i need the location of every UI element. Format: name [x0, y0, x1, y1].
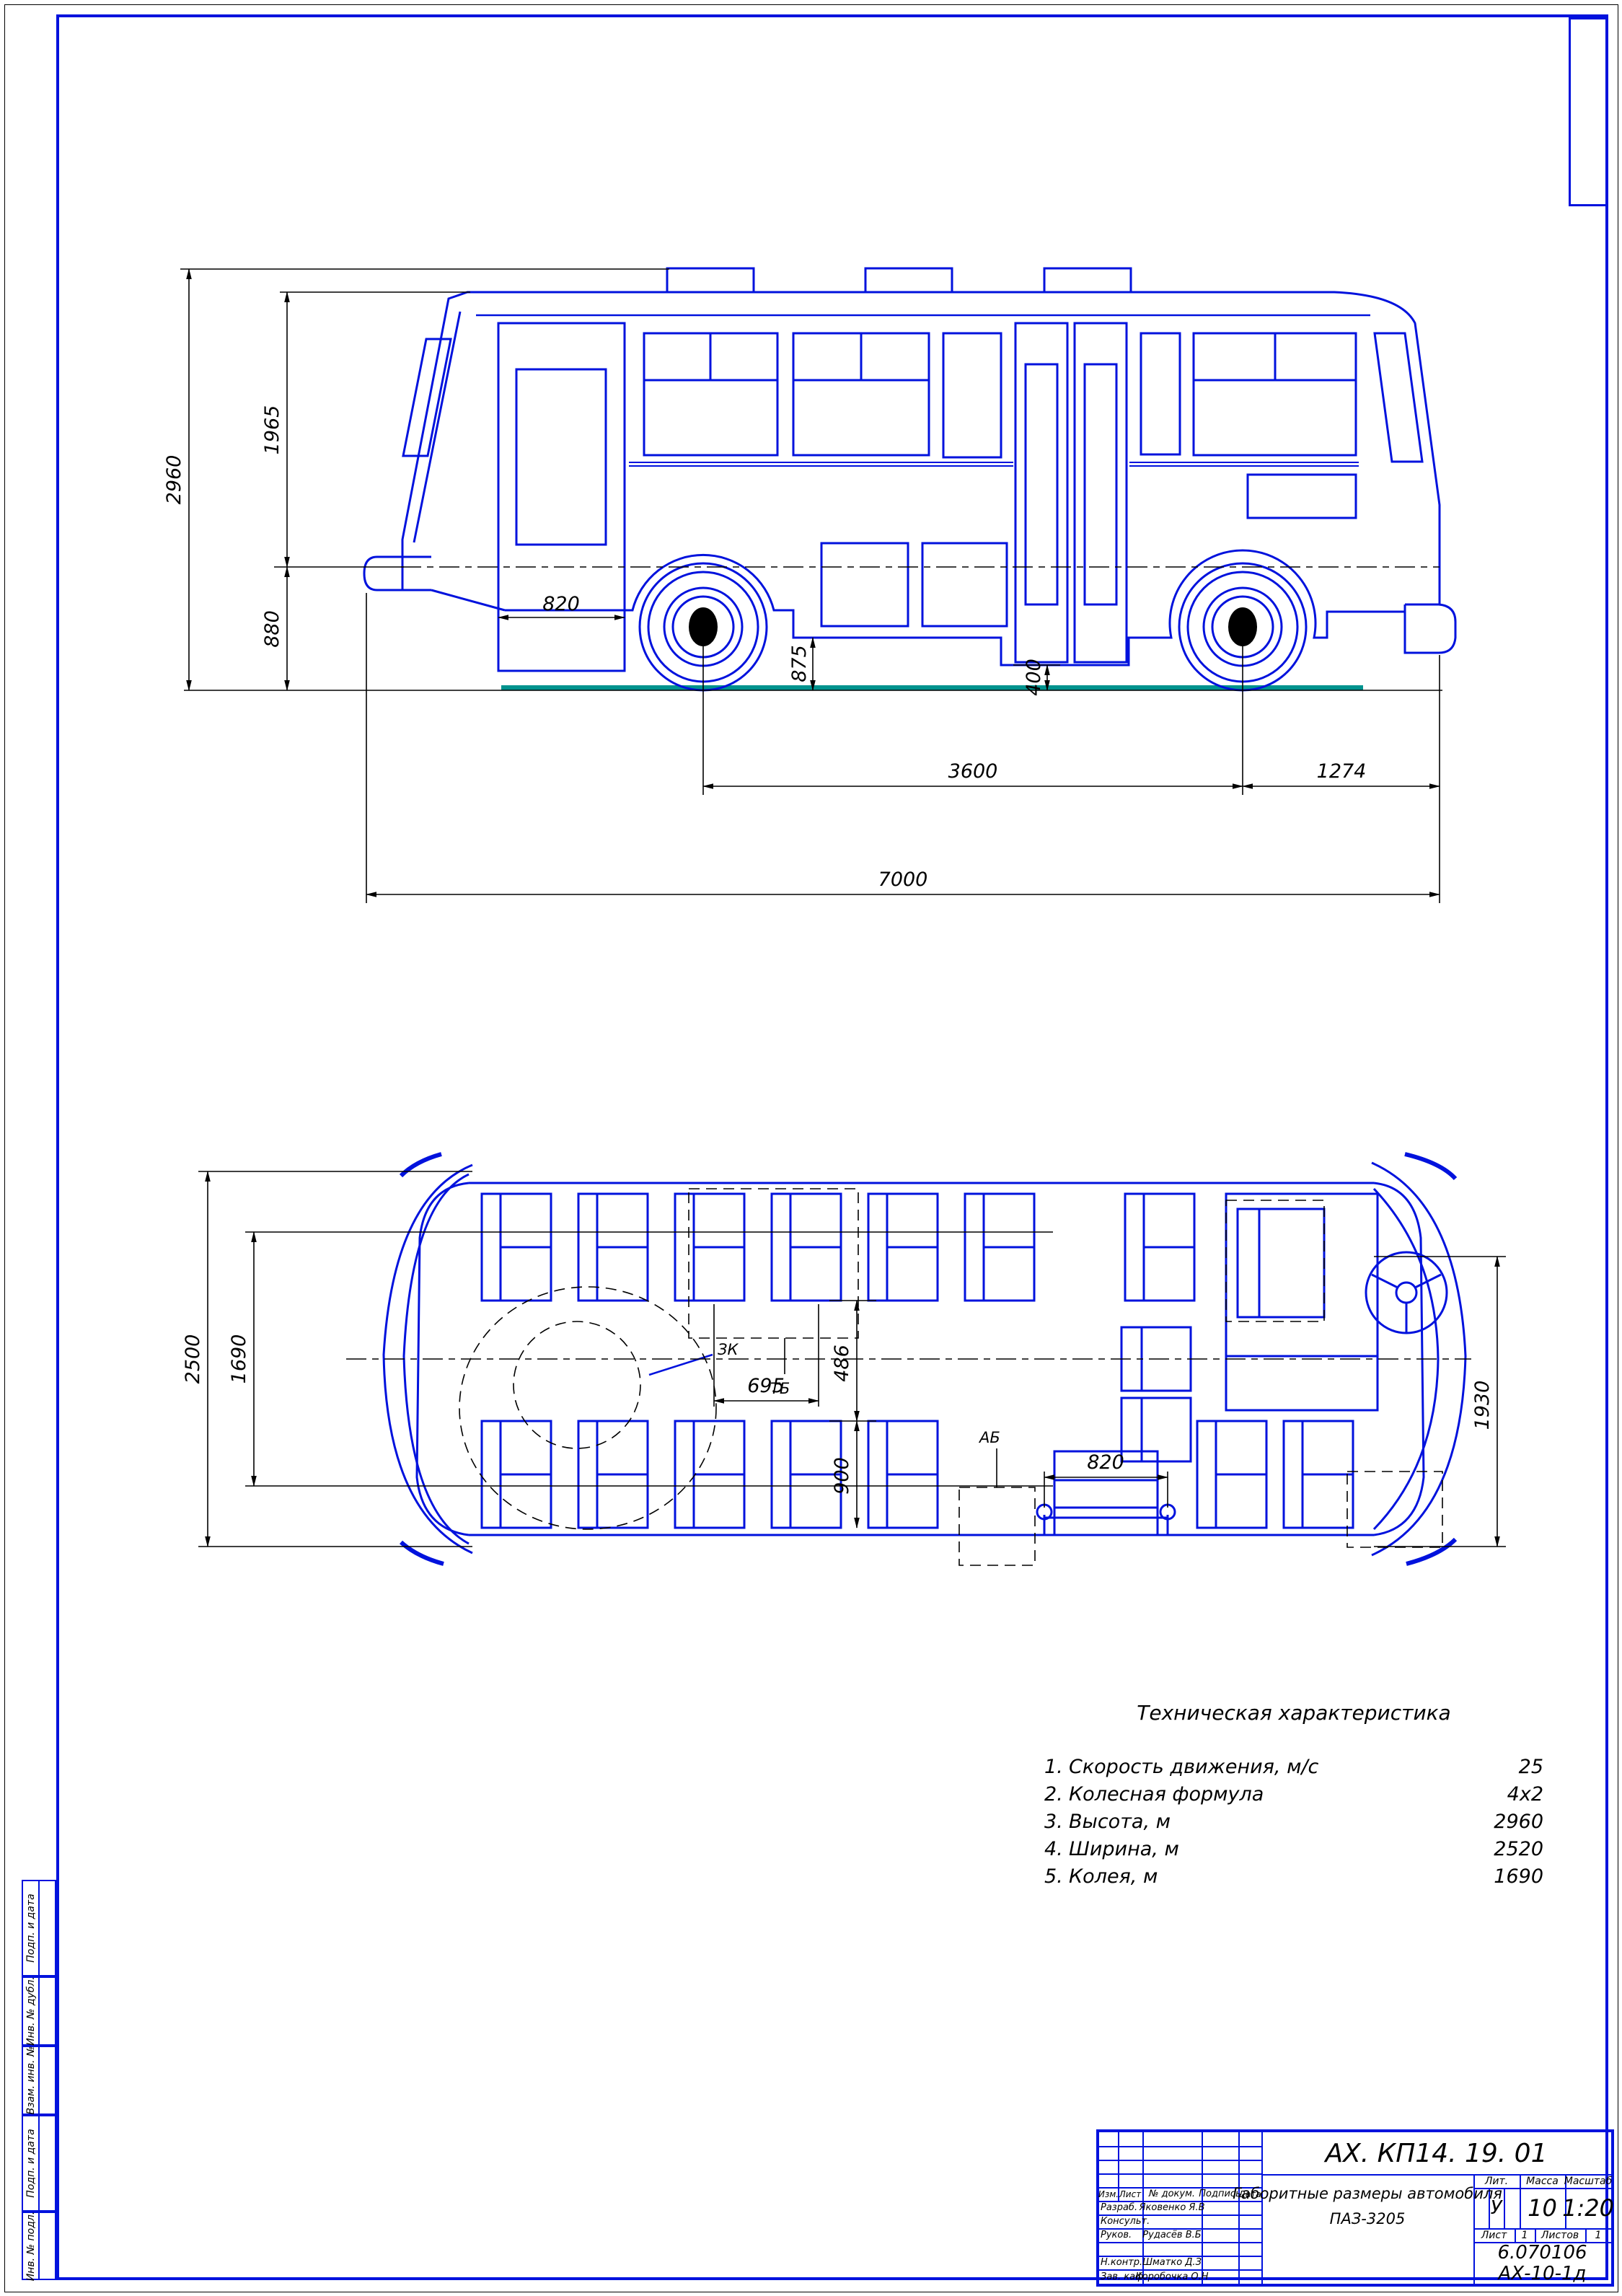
tech-row-label: Колея, м: [1069, 1863, 1450, 1891]
tb-line: [1238, 2132, 1240, 2284]
front-skirt-slope: [431, 590, 505, 610]
tb-sheets-label: Листов: [1535, 2228, 1585, 2242]
tb-name: Яковенко Я.В: [1142, 2201, 1202, 2214]
side-view-dimensions: [180, 269, 1442, 903]
dim-lower-height: 880: [261, 610, 283, 648]
spare-wheel-outer: [459, 1287, 716, 1529]
tech-row-num: 4.: [1044, 1836, 1069, 1863]
technical-characteristics: Техническая характеристика 1. Скорость д…: [1044, 1701, 1543, 1891]
tech-row-label: Ширина, м: [1069, 1836, 1450, 1863]
tech-title: Техническая характеристика: [1044, 1701, 1543, 1725]
tb-col-izm: Изм.: [1099, 2187, 1118, 2201]
front-bumper: [364, 557, 431, 590]
tb-sheet-label: Лист: [1473, 2228, 1515, 2242]
tb-sheet-value: 1: [1515, 2228, 1535, 2242]
tb-role: Руков.: [1101, 2228, 1142, 2242]
driver-seat-outline: [1226, 1200, 1324, 1321]
tb-line: [1504, 2188, 1505, 2228]
tb-role: Разраб.: [1101, 2201, 1142, 2214]
seat-row-upper: [482, 1194, 1194, 1301]
windshield-inner-edge: [414, 312, 460, 542]
dim-step-height: 400: [1023, 659, 1045, 696]
tech-row: 5. Колея, м 1690: [1044, 1863, 1543, 1891]
rear-vent: [1248, 475, 1356, 518]
drawing-sheet: Подп. и дата Инв. № дубл. Взам. инв. № П…: [0, 0, 1622, 2296]
tech-row-num: 5.: [1044, 1863, 1069, 1891]
dim-total-length: 7000: [878, 868, 928, 891]
tb-lit-label: Лит.: [1473, 2174, 1520, 2188]
dim-aisle-width: 486: [831, 1345, 853, 1382]
tb-role: Н.контр.: [1101, 2256, 1142, 2269]
tb-group-line2: АХ-10-1д: [1473, 2263, 1611, 2284]
bus-drawing: 2960 1965 880 875 400 820 3600 1274 7000: [0, 0, 1622, 2296]
driver-seat: [1238, 1209, 1324, 1317]
tb-line: [1099, 2173, 1261, 2175]
roof-hatch: [1044, 268, 1131, 292]
tb-name: [1142, 2214, 1202, 2228]
tb-line: [1099, 2160, 1261, 2161]
tech-row-num: 1.: [1044, 1754, 1069, 1781]
tech-row-value: 25: [1450, 1754, 1543, 1781]
label-spare-wheel: ЗК: [718, 1341, 739, 1358]
label-fuel-tank: ТБ: [770, 1380, 790, 1397]
tech-row: 4. Ширина, м 2520: [1044, 1836, 1543, 1863]
tech-row: 3. Высота, м 2960: [1044, 1808, 1543, 1836]
tb-doc-title-2: ПАЗ-3205: [1261, 2204, 1473, 2233]
tb-role: Консульт.: [1101, 2214, 1142, 2228]
tb-name: Коробочка О.Н: [1142, 2269, 1202, 2284]
middle-door: [1015, 323, 1127, 662]
luggage-hatch: [821, 543, 908, 626]
tb-scale-label: Масштаб: [1565, 2174, 1611, 2188]
side-view: [364, 268, 1455, 690]
battery-outline: [959, 1487, 1035, 1565]
bus-body-outline: [402, 292, 1440, 604]
tech-row: 2. Колесная формула 4х2: [1044, 1781, 1543, 1808]
roof-hatch: [865, 268, 952, 292]
waist-rails: [629, 462, 1359, 466]
front-bumper-cap: [1406, 1539, 1455, 1564]
tb-name: Шматко Д.З: [1142, 2256, 1202, 2269]
rear-bumper-cap: [401, 1154, 441, 1176]
dim-door-width: 820: [542, 593, 580, 615]
dim-front-width: 1930: [1471, 1381, 1494, 1430]
tb-scale-value: 1:20: [1565, 2188, 1611, 2228]
spare-wheel-inner: [514, 1321, 640, 1448]
tech-row-value: 2960: [1450, 1808, 1543, 1836]
tb-col-list: Лист: [1118, 2187, 1142, 2201]
tech-row-label: Скорость движения, м/с: [1069, 1754, 1450, 1781]
dim-overall-width: 2500: [182, 1334, 204, 1384]
luggage-hatch: [922, 543, 1007, 626]
dim-track: 1690: [228, 1334, 250, 1384]
tech-row-value: 1690: [1450, 1863, 1543, 1891]
dim-skirt-height: 875: [788, 645, 811, 682]
dim-plan-door-width: 820: [1087, 1451, 1124, 1474]
tech-row-label: Колесная формула: [1069, 1781, 1450, 1808]
dim-wheelbase: 3600: [948, 760, 998, 783]
dim-upper-height: 1965: [261, 405, 283, 455]
dim-rear-overhang: 1274: [1317, 760, 1367, 783]
tb-lit-value: У: [1489, 2188, 1504, 2228]
tb-col-ndoc: № докум.: [1142, 2187, 1202, 2201]
tb-sheets-value: 1: [1585, 2228, 1611, 2242]
spare-wheel-leader: [649, 1355, 713, 1375]
tech-row-value: 4х2: [1450, 1781, 1543, 1808]
roof-hatch: [667, 268, 754, 292]
tb-group-line1: 6.070106: [1473, 2242, 1611, 2263]
tech-row-num: 3.: [1044, 1808, 1069, 1836]
tb-line: [1099, 2146, 1261, 2147]
label-battery: АБ: [978, 1429, 1000, 1446]
engine-box: [1226, 1194, 1378, 1410]
tech-row-value: 2520: [1450, 1836, 1543, 1863]
front-bumper-cap: [1405, 1154, 1455, 1179]
tb-mass-label: Масса: [1520, 2174, 1565, 2188]
bus-skirt: [505, 550, 1405, 665]
tb-designation: АХ. КП14. 19. 01: [1261, 2132, 1611, 2174]
rear-bumper-cap: [401, 1542, 444, 1564]
dim-seat-row: 900: [831, 1457, 853, 1495]
tech-row: 1. Скорость движения, м/с 25: [1044, 1754, 1543, 1781]
top-view-hidden-lines: [459, 1189, 1442, 1565]
title-block: Изм. Лист № докум. Подпись Дата Разраб. …: [1096, 2129, 1614, 2287]
dim-overall-height: 2960: [163, 455, 185, 505]
tech-row-num: 2.: [1044, 1781, 1069, 1808]
tb-mass-value: 10: [1520, 2188, 1565, 2228]
tb-name: Рудасёв В.Б: [1142, 2228, 1202, 2242]
rear-bumper: [1405, 604, 1455, 653]
side-windows: [644, 333, 1422, 462]
front-door-window: [516, 369, 606, 545]
tech-row-label: Высота, м: [1069, 1808, 1450, 1836]
tb-line: [1099, 2242, 1261, 2243]
